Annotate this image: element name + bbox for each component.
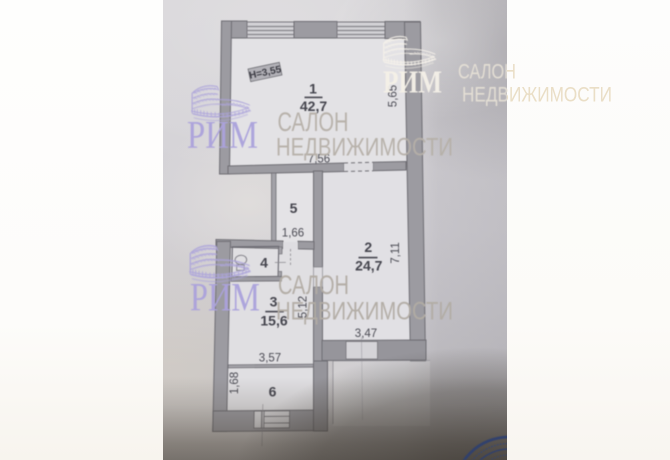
svg-text:САЛОН: САЛОН	[458, 61, 516, 84]
svg-text:НЕДВИЖИМОСТИ: НЕДВИЖИМОСТИ	[462, 84, 612, 107]
